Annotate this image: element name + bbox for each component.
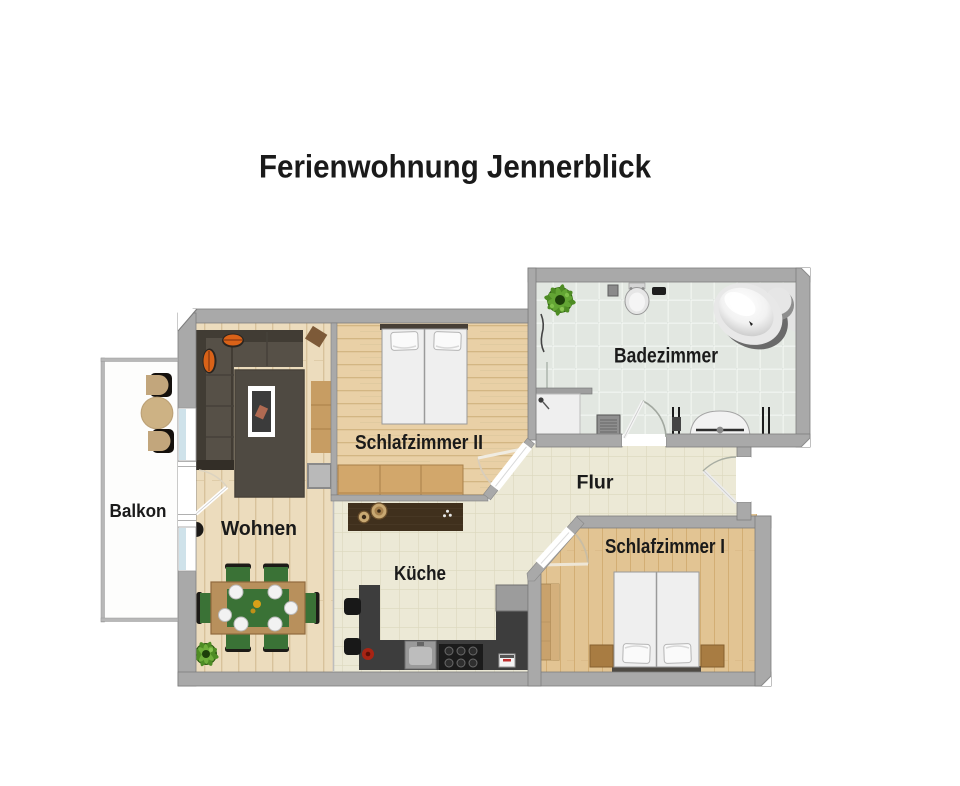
svg-text:Badezimmer: Badezimmer: [614, 344, 719, 368]
svg-text:Küche: Küche: [394, 563, 446, 585]
svg-text:Balkon: Balkon: [110, 501, 167, 521]
svg-text:Wohnen: Wohnen: [221, 518, 297, 540]
svg-text:Flur: Flur: [577, 472, 614, 494]
svg-text:Ferienwohnung Jennerblick: Ferienwohnung Jennerblick: [259, 149, 651, 185]
svg-text:Schlafzimmer II: Schlafzimmer II: [355, 432, 483, 454]
svg-text:Schlafzimmer I: Schlafzimmer I: [605, 536, 725, 558]
